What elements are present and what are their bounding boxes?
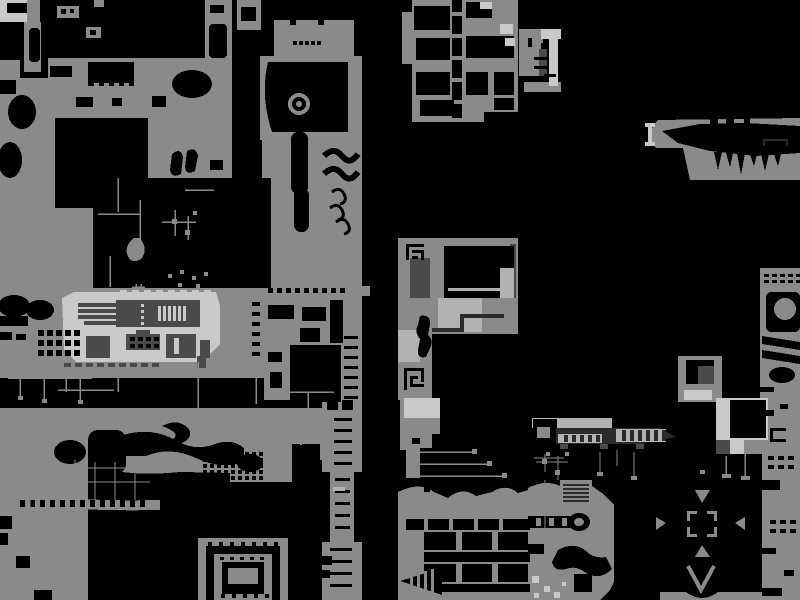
ship-grill bbox=[173, 306, 176, 321]
notch-grid bbox=[768, 456, 774, 460]
notch bbox=[318, 20, 324, 25]
corridor-doors bbox=[449, 519, 453, 530]
dust-dot bbox=[192, 276, 196, 280]
rubble-field bbox=[217, 476, 221, 480]
ring-core bbox=[574, 518, 584, 526]
maze-ticks bbox=[263, 542, 267, 546]
rubble-field bbox=[203, 470, 207, 474]
dot-row bbox=[293, 41, 297, 45]
hatch-marks bbox=[788, 274, 793, 277]
ship-grill bbox=[168, 306, 171, 321]
tower-hatch bbox=[327, 400, 338, 410]
rubble-field bbox=[217, 458, 221, 462]
hatch-marks bbox=[780, 274, 785, 277]
bridge-tab bbox=[356, 286, 370, 296]
ladder-rungs bbox=[344, 356, 358, 359]
notch-grid bbox=[788, 465, 794, 469]
door-ticks bbox=[124, 83, 129, 87]
notch bbox=[760, 387, 774, 392]
louver-block bbox=[563, 492, 589, 494]
rubble-field bbox=[252, 464, 256, 468]
door-dashes bbox=[313, 288, 318, 293]
window-grid bbox=[38, 340, 44, 346]
terrain bbox=[57, 6, 79, 18]
window-grid bbox=[74, 350, 80, 356]
ship-bay-cells bbox=[138, 344, 143, 348]
greek-key bbox=[404, 368, 407, 390]
conveyor-leg bbox=[560, 444, 568, 449]
se-room-dark bbox=[698, 366, 714, 384]
measure-tick bbox=[763, 140, 765, 146]
corridor-ties bbox=[536, 518, 541, 526]
column-cap bbox=[404, 398, 440, 418]
mark bbox=[34, 590, 52, 600]
room-hole bbox=[494, 72, 514, 95]
room-hole bbox=[88, 62, 134, 86]
ship-grill bbox=[163, 306, 166, 321]
tower-rungs bbox=[334, 462, 352, 465]
skid-dashes bbox=[130, 363, 137, 367]
wire-dot bbox=[472, 449, 477, 454]
window-grid bbox=[38, 330, 44, 336]
door-dashes bbox=[304, 288, 309, 293]
louver-block bbox=[563, 500, 589, 502]
light-chip bbox=[562, 582, 566, 586]
notch bbox=[762, 548, 776, 554]
hatch-marks bbox=[772, 274, 777, 277]
conveyor-stripes bbox=[630, 430, 634, 441]
dot-row bbox=[311, 41, 315, 45]
tower-rungs bbox=[330, 584, 352, 587]
ship-bay-cells bbox=[146, 344, 151, 348]
hatch-marks bbox=[764, 280, 769, 283]
mark bbox=[322, 556, 332, 565]
wire-dot bbox=[502, 473, 507, 478]
dot-row bbox=[305, 41, 309, 45]
maze-ticks bbox=[243, 594, 247, 598]
ladder-rungs bbox=[344, 386, 358, 389]
compass-bracket bbox=[714, 511, 717, 521]
cave-hole bbox=[0, 80, 16, 94]
rubble-field bbox=[252, 476, 256, 480]
tower-rungs bbox=[330, 572, 352, 575]
column-piece bbox=[406, 446, 420, 478]
maze-ticks bbox=[241, 542, 245, 546]
ship-dots bbox=[141, 310, 144, 313]
skid-dashes bbox=[119, 363, 126, 367]
dust-dot bbox=[178, 283, 182, 287]
ladder-rungs bbox=[344, 346, 358, 349]
hatch-marks bbox=[796, 274, 800, 277]
door-dashes bbox=[252, 342, 260, 346]
wire-dot bbox=[546, 452, 550, 456]
column-base bbox=[404, 418, 440, 434]
rubble-field bbox=[210, 452, 214, 456]
mark bbox=[16, 556, 30, 568]
conveyor-stripes bbox=[662, 430, 666, 441]
wire-dot bbox=[722, 474, 731, 478]
rubble-field bbox=[259, 464, 263, 468]
greek-key bbox=[421, 250, 424, 260]
hatch-marks bbox=[764, 274, 769, 277]
tower-base bbox=[322, 400, 362, 472]
ladder-rungs bbox=[344, 366, 358, 369]
louver-block bbox=[563, 496, 589, 498]
conveyor-stripes bbox=[564, 435, 568, 442]
compass-arrow-down bbox=[695, 490, 710, 503]
conveyor-stripes bbox=[572, 435, 576, 442]
conveyor-leg bbox=[636, 444, 644, 449]
antenna-cap bbox=[313, 427, 320, 433]
rubble-field bbox=[245, 458, 249, 462]
dot-row bbox=[317, 41, 321, 45]
maze-ticks bbox=[265, 594, 269, 598]
cave-hole bbox=[8, 95, 36, 129]
maze-ticks bbox=[219, 542, 223, 546]
conveyor-stripes bbox=[580, 435, 584, 442]
ship-dots bbox=[141, 304, 144, 307]
rubble-field bbox=[231, 470, 235, 474]
notch-grid bbox=[780, 520, 786, 524]
rubble-field bbox=[259, 470, 263, 474]
arrow-stripe bbox=[431, 569, 434, 593]
rubble-field bbox=[224, 470, 228, 474]
terrain bbox=[94, 0, 104, 7]
game-screen bbox=[0, 0, 800, 600]
wire-dot bbox=[631, 476, 637, 480]
mark bbox=[210, 5, 224, 13]
notch-grid bbox=[778, 465, 784, 469]
window-grid bbox=[56, 340, 62, 346]
maze-ticks bbox=[250, 557, 254, 560]
rubble-field bbox=[231, 476, 235, 480]
greek-key bbox=[412, 256, 418, 259]
tower-rungs bbox=[335, 502, 350, 505]
annex-dark bbox=[539, 49, 547, 76]
compass-tick bbox=[700, 470, 705, 474]
room-hole bbox=[302, 307, 326, 321]
arrow-stripe bbox=[424, 571, 427, 591]
corridor-doors bbox=[499, 519, 503, 530]
annex-bar bbox=[541, 29, 561, 39]
conveyor-stripes bbox=[596, 435, 600, 442]
conveyor-leg bbox=[600, 444, 608, 449]
wire-dot bbox=[195, 416, 202, 420]
mark bbox=[90, 30, 96, 35]
louver-block bbox=[563, 488, 589, 490]
shaft-ticks bbox=[452, 12, 462, 16]
hub-patch bbox=[500, 268, 514, 298]
bracket-gate bbox=[645, 142, 655, 146]
ship-bay-cells bbox=[130, 344, 135, 348]
notch-grid bbox=[770, 520, 776, 524]
room-hole bbox=[498, 532, 528, 550]
room-hole bbox=[268, 352, 282, 362]
maze-ticks bbox=[208, 542, 212, 546]
tower-neck bbox=[330, 472, 354, 542]
window-grid bbox=[65, 330, 71, 336]
rail-ties bbox=[80, 500, 85, 507]
mark bbox=[210, 160, 223, 170]
tower-rungs bbox=[335, 478, 350, 481]
tunnel-blob bbox=[26, 300, 54, 320]
skid-dashes bbox=[141, 363, 148, 367]
rubble-field bbox=[210, 464, 214, 468]
column-hole bbox=[412, 438, 420, 444]
room-hole bbox=[112, 98, 122, 106]
rubble-field bbox=[203, 476, 207, 480]
wire-dot bbox=[42, 399, 47, 403]
notch bbox=[762, 588, 782, 596]
arrow-stripe bbox=[410, 577, 413, 586]
rubble-field bbox=[238, 452, 242, 456]
tower-light-mark bbox=[333, 487, 345, 491]
door-dashes bbox=[340, 288, 345, 293]
ship-slit bbox=[174, 338, 179, 354]
room-hole bbox=[462, 532, 492, 550]
maze-ticks bbox=[252, 542, 256, 546]
hub-shaft bbox=[410, 258, 430, 298]
antenna-cap bbox=[284, 427, 291, 433]
mark bbox=[61, 9, 66, 14]
window-grid bbox=[65, 350, 71, 356]
maze-ticks bbox=[254, 594, 258, 598]
room-hole bbox=[462, 564, 492, 582]
rubble-field bbox=[252, 452, 256, 456]
compass-arrow-left bbox=[735, 517, 745, 530]
rubble-field bbox=[203, 452, 207, 456]
rail-ties bbox=[60, 500, 65, 507]
notch bbox=[726, 112, 734, 124]
corridor-ties bbox=[549, 518, 554, 526]
cave-hole bbox=[209, 24, 227, 58]
maze-ticks bbox=[230, 557, 234, 560]
rubble-field bbox=[231, 452, 235, 456]
shaft-ticks bbox=[452, 34, 462, 38]
room-hole bbox=[466, 72, 488, 95]
se-room bbox=[730, 400, 766, 438]
rubble-field bbox=[217, 464, 221, 468]
skid-dashes bbox=[75, 363, 82, 367]
window-grid bbox=[65, 340, 71, 346]
annex-line bbox=[534, 66, 549, 69]
light-patch bbox=[505, 38, 515, 46]
tunnel-blob bbox=[0, 316, 28, 326]
chevron-v bbox=[688, 566, 714, 590]
room-hole bbox=[241, 7, 256, 21]
ship-bay bbox=[86, 336, 110, 358]
rubble-field bbox=[217, 470, 221, 474]
rail-ties bbox=[50, 500, 55, 507]
room-hole bbox=[268, 305, 294, 319]
rubble-field bbox=[238, 458, 242, 462]
room-hole bbox=[414, 6, 450, 30]
skid-dashes bbox=[108, 363, 115, 367]
ship-grill bbox=[158, 306, 161, 321]
tunnel bbox=[294, 188, 309, 232]
tower-rungs bbox=[334, 429, 352, 432]
room-hole bbox=[16, 334, 26, 340]
dot-row bbox=[299, 41, 303, 45]
cave-island bbox=[774, 298, 796, 320]
tower-rungs bbox=[334, 440, 352, 443]
bracket-gate bbox=[645, 123, 655, 127]
rail-ties bbox=[100, 500, 105, 507]
tower-rungs bbox=[335, 526, 350, 529]
rubble-field bbox=[217, 452, 221, 456]
door-dashes bbox=[252, 302, 260, 306]
conveyor-stripes bbox=[622, 430, 626, 441]
mark bbox=[470, 487, 475, 492]
dark-zone bbox=[55, 178, 95, 208]
rubble-field bbox=[238, 464, 242, 468]
node-dot bbox=[185, 230, 190, 235]
conveyor-stripes bbox=[638, 430, 642, 441]
rubble-field bbox=[259, 476, 263, 480]
world-map-canvas[interactable] bbox=[0, 0, 800, 600]
rubble-field bbox=[210, 476, 214, 480]
node-dot bbox=[193, 211, 197, 215]
window-grid bbox=[74, 330, 80, 336]
node-dot bbox=[172, 219, 177, 224]
room-hole bbox=[76, 97, 93, 107]
window-grid bbox=[47, 330, 53, 336]
maze-ticks bbox=[220, 557, 224, 560]
maze-ticks bbox=[221, 594, 225, 598]
corridor bbox=[438, 584, 530, 592]
cavity bbox=[290, 345, 341, 402]
hub-hall-line bbox=[448, 288, 506, 291]
rail-ties bbox=[20, 500, 25, 507]
ship-dots bbox=[141, 322, 144, 325]
notch-grid bbox=[780, 529, 786, 533]
compass-arrow-up bbox=[695, 545, 710, 557]
shaft-ticks bbox=[452, 78, 462, 82]
compass-bracket bbox=[687, 527, 690, 537]
rail-ties bbox=[140, 500, 145, 507]
rubble-field bbox=[224, 464, 228, 468]
room-hole bbox=[424, 532, 456, 550]
notch bbox=[710, 116, 718, 125]
skid-dashes bbox=[97, 363, 104, 367]
tower-rungs bbox=[335, 514, 350, 517]
cave-hole bbox=[172, 70, 212, 98]
notch bbox=[744, 116, 750, 124]
se-block bbox=[744, 440, 768, 454]
ship-bay-cells bbox=[138, 337, 143, 341]
window-grid bbox=[38, 350, 44, 356]
wire-dot bbox=[597, 472, 603, 476]
door-dashes bbox=[252, 322, 260, 326]
room-hole bbox=[0, 332, 12, 340]
window-grid bbox=[47, 340, 53, 346]
hub-patch bbox=[398, 330, 420, 362]
door-ticks bbox=[104, 83, 109, 87]
dust-dot bbox=[196, 284, 200, 288]
light-chip bbox=[534, 593, 539, 598]
wire-dot bbox=[305, 422, 312, 426]
light-chip bbox=[532, 576, 539, 583]
bracket-mark bbox=[770, 439, 786, 442]
rubble-field bbox=[231, 464, 235, 468]
bracket-gate bbox=[648, 126, 652, 143]
mark bbox=[322, 570, 330, 578]
window-grid bbox=[56, 350, 62, 356]
rubble-field bbox=[238, 470, 242, 474]
rail-ties bbox=[90, 500, 95, 507]
ship-bay-cells bbox=[154, 337, 159, 341]
room-hole bbox=[574, 574, 592, 592]
greek-key bbox=[421, 368, 424, 382]
notch-grid bbox=[770, 529, 776, 533]
shaft-hole bbox=[330, 300, 343, 343]
tower-rungs bbox=[330, 548, 352, 551]
notch-grid bbox=[778, 456, 784, 460]
hatch-marks bbox=[788, 280, 793, 283]
hatch-marks bbox=[772, 280, 777, 283]
room-hole bbox=[416, 38, 450, 60]
maze-core bbox=[228, 568, 258, 584]
room-hole bbox=[498, 564, 528, 582]
mark bbox=[0, 533, 8, 545]
ship-bay-cells bbox=[130, 337, 135, 341]
light-patch bbox=[480, 2, 492, 9]
ladder-rungs bbox=[344, 396, 358, 399]
mark bbox=[0, 516, 12, 529]
greek-key bbox=[410, 376, 413, 384]
rail-ties bbox=[30, 500, 35, 507]
maze-ticks bbox=[230, 542, 234, 546]
ship-bay bbox=[166, 334, 196, 358]
rubble-field bbox=[259, 458, 263, 462]
rail-ties bbox=[120, 500, 125, 507]
notch-grid bbox=[790, 520, 796, 524]
compass-arrow-right bbox=[656, 517, 666, 530]
ship-dots bbox=[141, 316, 144, 319]
door-dashes bbox=[295, 288, 300, 293]
rubble-field bbox=[252, 458, 256, 462]
se-cave-bump bbox=[560, 480, 592, 502]
node-dot bbox=[542, 459, 547, 464]
annex-bar bbox=[549, 39, 558, 86]
maze-ticks bbox=[232, 594, 236, 598]
dust-dot bbox=[204, 272, 208, 276]
rail-ties bbox=[130, 500, 135, 507]
annex-line bbox=[544, 74, 556, 77]
worm-tunnel bbox=[237, 454, 263, 472]
ship-bay-cells bbox=[146, 337, 151, 341]
greek-key bbox=[406, 244, 409, 260]
room-hole bbox=[270, 372, 282, 388]
window-grid bbox=[47, 350, 53, 356]
rail-ties bbox=[40, 500, 45, 507]
maze-ticks bbox=[274, 542, 278, 546]
rail-ties bbox=[110, 500, 115, 507]
conveyor-stripes bbox=[588, 435, 592, 442]
rail-ties bbox=[70, 500, 75, 507]
corridor bbox=[424, 552, 530, 562]
cave-hole bbox=[29, 28, 40, 62]
ship-grill bbox=[178, 306, 181, 321]
maze-ticks bbox=[210, 594, 214, 598]
rubble-field bbox=[259, 452, 263, 456]
greek-key bbox=[410, 384, 424, 387]
wire-dot bbox=[487, 461, 492, 466]
shaft-ticks bbox=[452, 56, 462, 60]
se-dark-block bbox=[716, 440, 730, 454]
node-dot bbox=[565, 452, 569, 456]
window-grid bbox=[74, 340, 80, 346]
